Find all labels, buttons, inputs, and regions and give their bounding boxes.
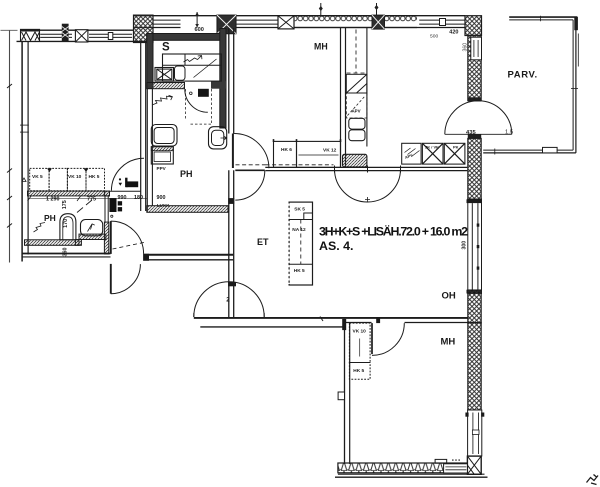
svg-text:HK 5: HK 5	[89, 174, 100, 180]
svg-text:ET: ET	[257, 237, 269, 247]
svg-text:420: 420	[449, 29, 458, 35]
svg-text:PK: PK	[453, 145, 459, 150]
svg-text:APV: APV	[352, 109, 361, 114]
svg-text:435: 435	[466, 130, 476, 136]
svg-text:600: 600	[195, 27, 204, 33]
svg-text:360: 360	[463, 43, 469, 52]
svg-text:AS. 4.: AS. 4.	[319, 239, 353, 253]
svg-text:MH: MH	[441, 337, 456, 348]
svg-text:HK 5: HK 5	[353, 368, 364, 374]
svg-text:3H+K+S +LISÄH.72.0 + 16.0 m2: 3H+K+S +LISÄH.72.0 + 16.0 m2	[319, 223, 468, 238]
svg-text:775: 775	[87, 197, 96, 203]
svg-text:1.5: 1.5	[505, 130, 513, 136]
svg-text:175: 175	[62, 200, 68, 209]
svg-text:JK / VK: JK / VK	[425, 145, 439, 150]
svg-text:1 290: 1 290	[46, 197, 60, 203]
svg-text:HK 6: HK 6	[281, 147, 292, 153]
svg-text:NA 12: NA 12	[292, 227, 306, 233]
svg-text:VK 10: VK 10	[68, 174, 82, 180]
svg-text:VK 12: VK 12	[323, 148, 337, 154]
svg-text:170: 170	[63, 219, 69, 228]
svg-text:360: 360	[63, 248, 69, 257]
svg-text:HK 5: HK 5	[294, 268, 305, 274]
svg-text:PPV: PPV	[157, 166, 167, 171]
svg-text:990: 990	[118, 195, 127, 201]
svg-text:300: 300	[461, 241, 467, 250]
svg-text:900: 900	[157, 195, 166, 201]
svg-text:MH: MH	[314, 41, 328, 51]
svg-text:VK 5: VK 5	[32, 174, 43, 180]
svg-text:180: 180	[134, 195, 143, 201]
svg-text:PH: PH	[180, 169, 193, 179]
svg-text:SK 5: SK 5	[294, 207, 305, 213]
svg-text:PH: PH	[44, 213, 56, 223]
svg-text:S: S	[162, 42, 170, 54]
svg-text:OH: OH	[442, 290, 456, 301]
svg-text:500: 500	[430, 34, 438, 40]
svg-text:PARV.: PARV.	[508, 69, 538, 80]
svg-text:2: 2	[226, 297, 230, 304]
svg-text:VK 10: VK 10	[353, 329, 367, 335]
